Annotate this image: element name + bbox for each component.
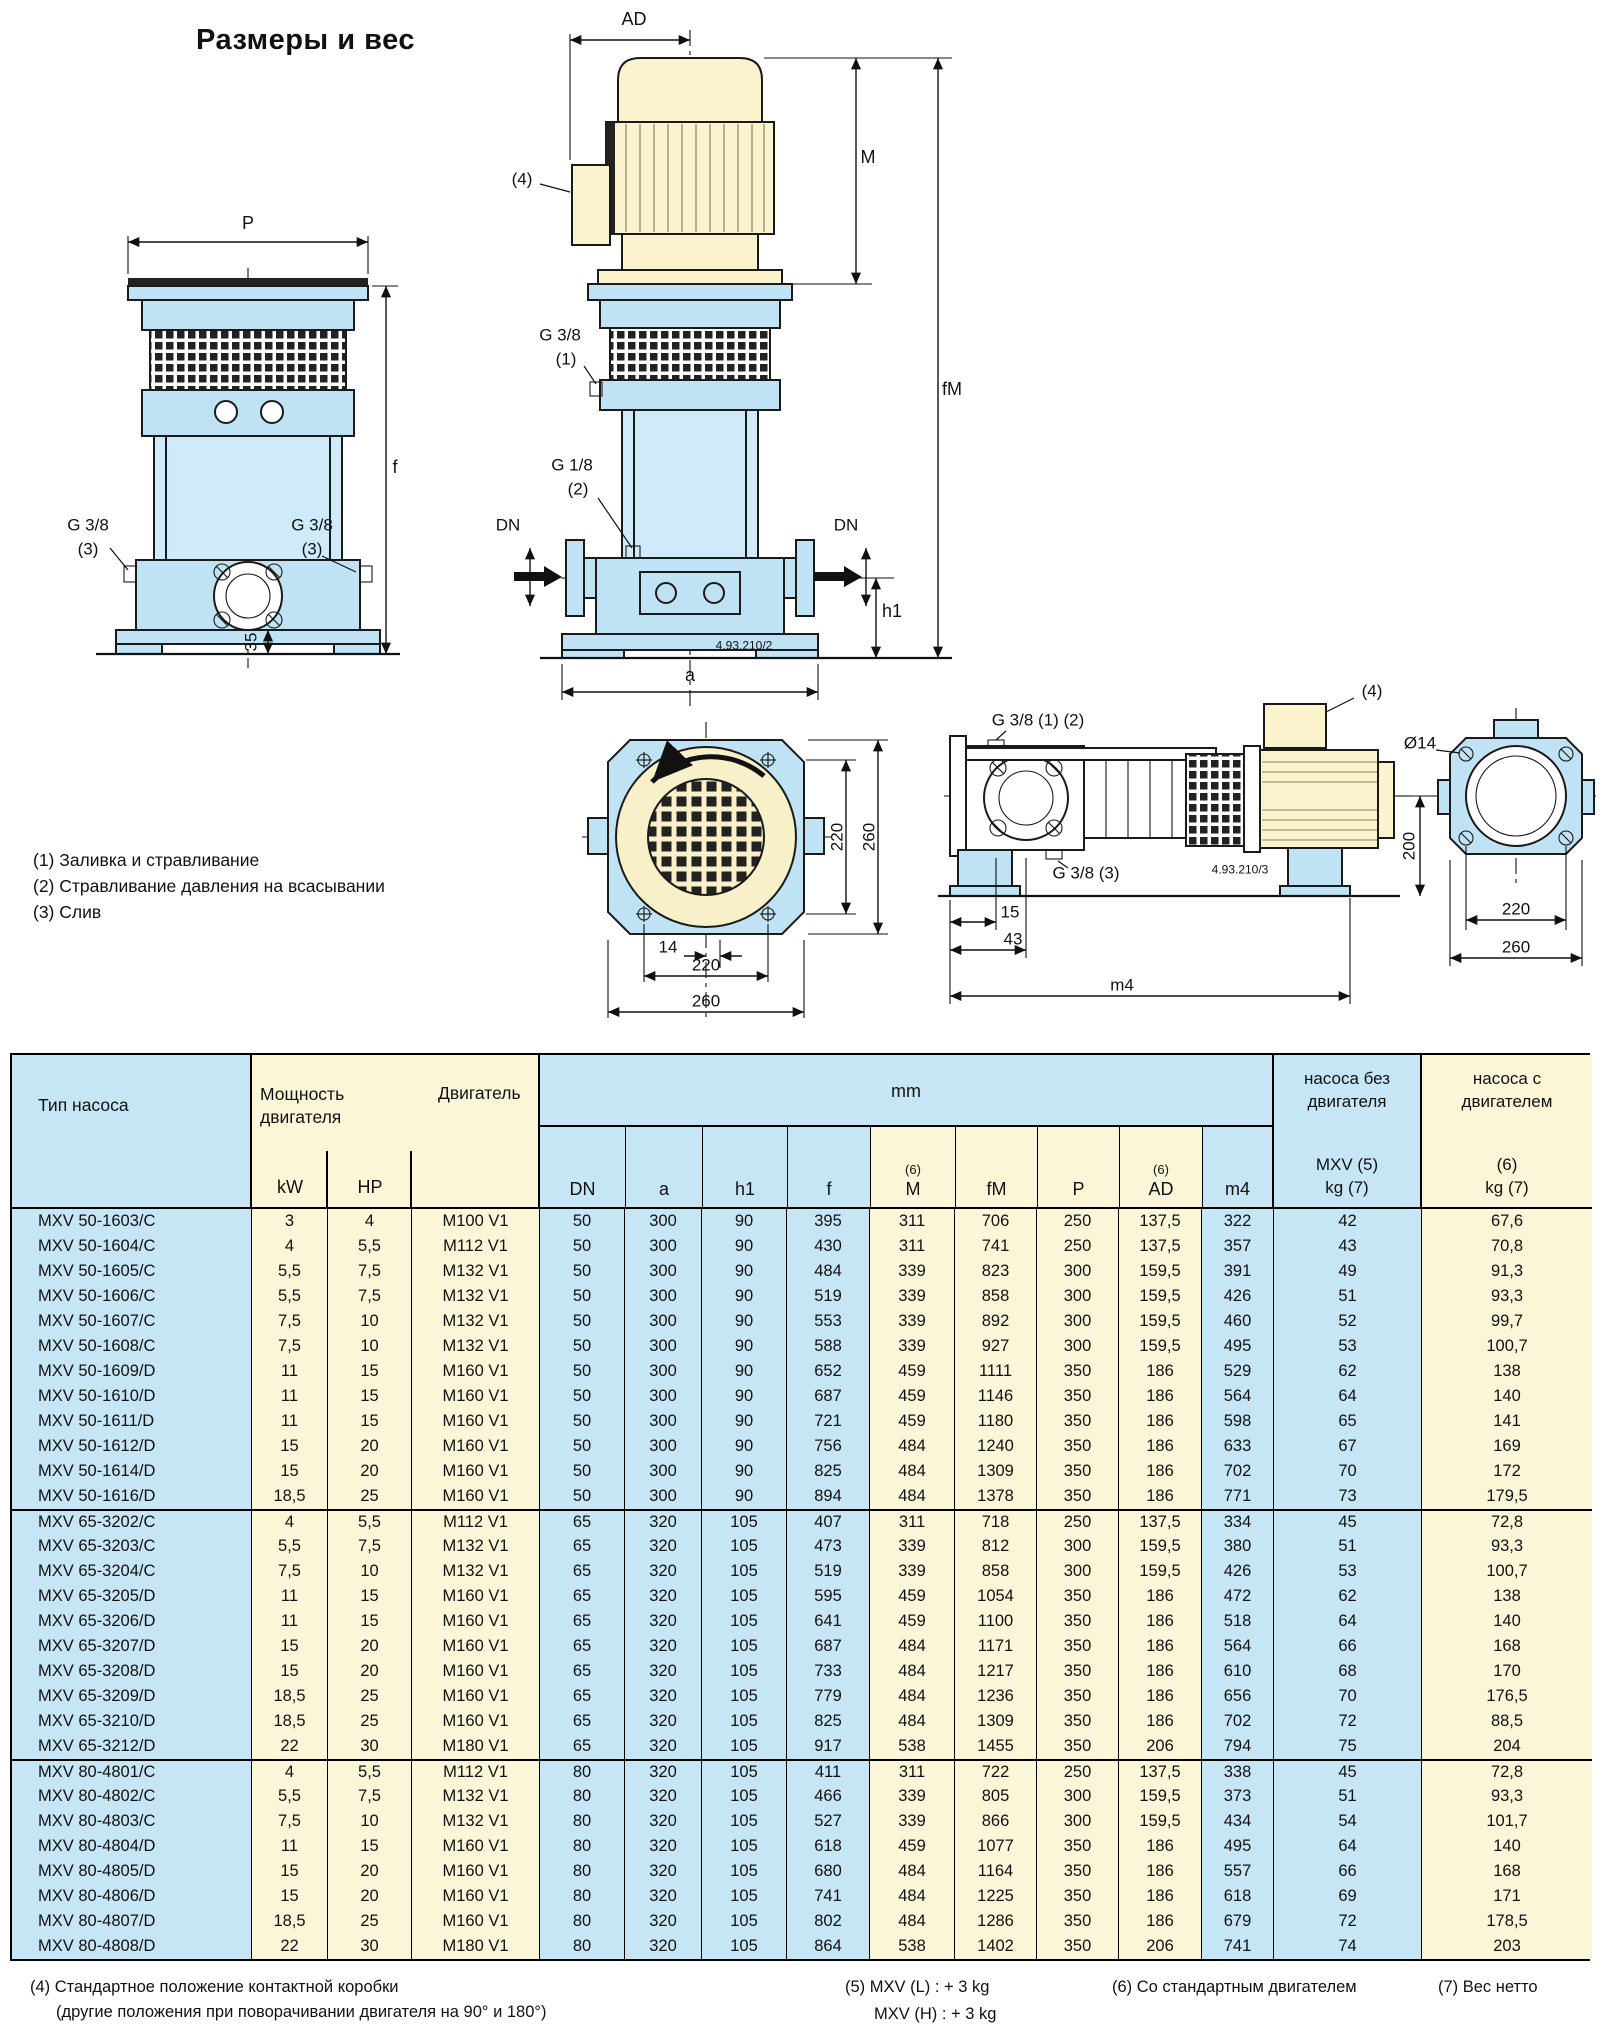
value-cell: 339	[870, 1259, 955, 1284]
value-cell: 72,8	[1422, 1759, 1592, 1784]
value-cell: 15	[252, 1659, 328, 1684]
value-cell: M112 V1	[412, 1759, 540, 1784]
value-cell: 459	[870, 1384, 955, 1409]
value-cell: 320	[625, 1584, 702, 1609]
value-cell: 159,5	[1119, 1309, 1202, 1334]
value-cell: 300	[1037, 1284, 1119, 1309]
value-cell: 350	[1037, 1659, 1119, 1684]
value-cell: 90	[702, 1484, 787, 1509]
value-cell: 484	[870, 1709, 955, 1734]
value-cell: 49	[1274, 1259, 1422, 1284]
value-cell: 25	[328, 1684, 412, 1709]
pump-type-cell: MXV 50-1605/C	[12, 1259, 252, 1284]
value-cell: 15	[328, 1609, 412, 1634]
pump-type-cell: MXV 50-1614/D	[12, 1459, 252, 1484]
value-cell: 105	[702, 1559, 787, 1584]
value-cell: 159,5	[1119, 1559, 1202, 1584]
value-cell: 823	[955, 1259, 1037, 1284]
value-cell: 72,8	[1422, 1509, 1592, 1534]
value-cell: 1402	[955, 1934, 1037, 1959]
value-cell: 618	[787, 1834, 870, 1859]
value-cell: M180 V1	[412, 1734, 540, 1759]
value-cell: 350	[1037, 1584, 1119, 1609]
dim-label-15: 15	[1001, 904, 1020, 923]
value-cell: 65	[540, 1734, 625, 1759]
value-cell: 300	[625, 1284, 702, 1309]
header-weight-with-motor: насоса с двигателем (6) kg (7)	[1422, 1055, 1592, 1209]
value-cell: 105	[702, 1884, 787, 1909]
value-cell: 250	[1037, 1234, 1119, 1259]
value-cell: 80	[540, 1934, 625, 1959]
value-cell: 50	[540, 1459, 625, 1484]
value-cell: 186	[1119, 1434, 1202, 1459]
page-title: Размеры и вес	[196, 24, 415, 57]
value-cell: 186	[1119, 1684, 1202, 1709]
value-cell: 687	[787, 1384, 870, 1409]
value-cell: 4	[328, 1209, 412, 1234]
value-cell: 20	[328, 1859, 412, 1884]
value-cell: 186	[1119, 1634, 1202, 1659]
value-cell: 179,5	[1422, 1484, 1592, 1509]
value-cell: 20	[328, 1634, 412, 1659]
value-cell: 15	[328, 1834, 412, 1859]
value-cell: 45	[1274, 1509, 1422, 1534]
port-label-g38-12: G 3/8 (1) (2)	[992, 712, 1085, 731]
column-header-DN: DN	[540, 1127, 625, 1207]
value-cell: 733	[787, 1659, 870, 1684]
value-cell: M132 V1	[412, 1559, 540, 1584]
port-label-g38-left: G 3/8	[67, 517, 109, 536]
value-cell: 518	[1202, 1609, 1274, 1634]
value-cell: 1180	[955, 1409, 1037, 1434]
value-cell: 18,5	[252, 1909, 328, 1934]
value-cell: 320	[625, 1884, 702, 1909]
value-cell: M132 V1	[412, 1334, 540, 1359]
value-cell: 90	[702, 1459, 787, 1484]
value-cell: 105	[702, 1509, 787, 1534]
value-cell: 825	[787, 1459, 870, 1484]
value-cell: 105	[702, 1759, 787, 1784]
pump-type-cell: MXV 65-3210/D	[12, 1709, 252, 1734]
value-cell: 80	[540, 1759, 625, 1784]
value-cell: 350	[1037, 1634, 1119, 1659]
dim-label-35: 35	[243, 633, 262, 652]
value-cell: M160 V1	[412, 1834, 540, 1859]
value-cell: 858	[955, 1284, 1037, 1309]
value-cell: 564	[1202, 1384, 1274, 1409]
value-cell: 137,5	[1119, 1209, 1202, 1234]
port-ref-3-left: (3)	[78, 541, 99, 560]
value-cell: 65	[540, 1634, 625, 1659]
note-2: (2) Стравливание давления на всасывании	[33, 876, 385, 897]
value-cell: 5,5	[328, 1509, 412, 1534]
value-cell: 7,5	[328, 1284, 412, 1309]
value-cell: 51	[1274, 1784, 1422, 1809]
value-cell: 519	[787, 1559, 870, 1584]
value-cell: 5,5	[252, 1284, 328, 1309]
value-cell: 7,5	[252, 1309, 328, 1334]
value-cell: M100 V1	[412, 1209, 540, 1234]
drawing-code-side: 4.93.210/3	[1212, 863, 1269, 876]
value-cell: 339	[870, 1334, 955, 1359]
pump-type-cell: MXV 50-1606/C	[12, 1284, 252, 1309]
pump-type-cell: MXV 80-4806/D	[12, 1884, 252, 1909]
value-cell: 70	[1274, 1459, 1422, 1484]
value-cell: 339	[870, 1559, 955, 1584]
value-cell: 300	[625, 1209, 702, 1234]
value-cell: 320	[625, 1634, 702, 1659]
value-cell: 7,5	[252, 1559, 328, 1584]
value-cell: 652	[787, 1359, 870, 1384]
value-cell: 90	[702, 1309, 787, 1334]
value-cell: 484	[870, 1859, 955, 1884]
value-cell: 105	[702, 1659, 787, 1684]
value-cell: 15	[328, 1384, 412, 1409]
value-cell: 794	[1202, 1734, 1274, 1759]
value-cell: 105	[702, 1909, 787, 1934]
value-cell: 300	[1037, 1534, 1119, 1559]
value-cell: 30	[328, 1934, 412, 1959]
note-1: (1) Заливка и стравливание	[33, 850, 259, 871]
value-cell: 64	[1274, 1384, 1422, 1409]
pump-type-cell: MXV 50-1607/C	[12, 1309, 252, 1334]
pump-type-cell: MXV 80-4807/D	[12, 1909, 252, 1934]
footnote-4-line1: (4) Стандартное положение контактной кор…	[30, 1978, 399, 1997]
value-cell: 459	[870, 1409, 955, 1434]
value-cell: 206	[1119, 1734, 1202, 1759]
horizontal-pump-drawing	[938, 698, 1430, 1004]
value-cell: 138	[1422, 1584, 1592, 1609]
value-cell: 1054	[955, 1584, 1037, 1609]
value-cell: 300	[625, 1259, 702, 1284]
value-cell: 10	[328, 1334, 412, 1359]
value-cell: 484	[870, 1634, 955, 1659]
value-cell: 300	[625, 1409, 702, 1434]
value-cell: 65	[540, 1559, 625, 1584]
value-cell: 62	[1274, 1359, 1422, 1384]
pump-type-cell: MXV 65-3207/D	[12, 1634, 252, 1659]
value-cell: 538	[870, 1734, 955, 1759]
value-cell: 15	[252, 1859, 328, 1884]
value-cell: 25	[328, 1484, 412, 1509]
value-cell: 484	[870, 1659, 955, 1684]
value-cell: 300	[1037, 1309, 1119, 1334]
value-cell: 320	[625, 1809, 702, 1834]
value-cell: 484	[870, 1484, 955, 1509]
value-cell: 186	[1119, 1584, 1202, 1609]
value-cell: 7,5	[252, 1809, 328, 1834]
value-cell: 186	[1119, 1484, 1202, 1509]
value-cell: 186	[1119, 1409, 1202, 1434]
value-cell: 65	[540, 1659, 625, 1684]
value-cell: 75	[1274, 1734, 1422, 1759]
value-cell: 1236	[955, 1684, 1037, 1709]
column-header-M: (6)M	[870, 1127, 955, 1207]
value-cell: 80	[540, 1809, 625, 1834]
value-cell: 656	[1202, 1684, 1274, 1709]
value-cell: 320	[625, 1684, 702, 1709]
header-power: Мощность двигателя	[260, 1083, 344, 1129]
pump-type-cell: MXV 65-3205/D	[12, 1584, 252, 1609]
value-cell: 168	[1422, 1859, 1592, 1884]
value-cell: 100,7	[1422, 1559, 1592, 1584]
value-cell: 373	[1202, 1784, 1274, 1809]
value-cell: 50	[540, 1409, 625, 1434]
value-cell: 50	[540, 1309, 625, 1334]
value-cell: 1171	[955, 1634, 1037, 1659]
value-cell: 43	[1274, 1234, 1422, 1259]
column-header-m4: m4	[1202, 1127, 1272, 1207]
header-pump-type: Тип насоса	[12, 1055, 252, 1209]
value-cell: 320	[625, 1759, 702, 1784]
dim-label-a: a	[685, 666, 695, 686]
column-header-P: P	[1037, 1127, 1119, 1207]
value-cell: 460	[1202, 1309, 1274, 1334]
value-cell: 595	[787, 1584, 870, 1609]
value-cell: 72	[1274, 1709, 1422, 1734]
value-cell: 11	[252, 1584, 328, 1609]
value-cell: 250	[1037, 1759, 1119, 1784]
value-cell: 15	[328, 1584, 412, 1609]
value-cell: 350	[1037, 1934, 1119, 1959]
value-cell: 141	[1422, 1409, 1592, 1434]
value-cell: 395	[787, 1209, 870, 1234]
value-cell: 339	[870, 1784, 955, 1809]
value-cell: 5,5	[252, 1534, 328, 1559]
dim-label-m4: m4	[1110, 977, 1134, 996]
value-cell: 311	[870, 1209, 955, 1234]
value-cell: 65	[540, 1534, 625, 1559]
value-cell: 1240	[955, 1434, 1037, 1459]
value-cell: 74	[1274, 1934, 1422, 1959]
value-cell: 186	[1119, 1709, 1202, 1734]
value-cell: 300	[625, 1309, 702, 1334]
value-cell: 69	[1274, 1884, 1422, 1909]
port-ref-3-right: (3)	[302, 541, 323, 560]
value-cell: 350	[1037, 1734, 1119, 1759]
value-cell: 50	[540, 1284, 625, 1309]
value-cell: 779	[787, 1684, 870, 1709]
value-cell: 459	[870, 1834, 955, 1859]
value-cell: 4	[252, 1509, 328, 1534]
value-cell: 7,5	[252, 1334, 328, 1359]
value-cell: 186	[1119, 1834, 1202, 1859]
value-cell: 426	[1202, 1559, 1274, 1584]
value-cell: 90	[702, 1259, 787, 1284]
value-cell: 495	[1202, 1334, 1274, 1359]
pump-type-cell: MXV 50-1609/D	[12, 1359, 252, 1384]
value-cell: 459	[870, 1609, 955, 1634]
value-cell: M132 V1	[412, 1309, 540, 1334]
value-cell: M132 V1	[412, 1284, 540, 1309]
value-cell: 741	[1202, 1934, 1274, 1959]
value-cell: 206	[1119, 1934, 1202, 1959]
value-cell: 350	[1037, 1359, 1119, 1384]
value-cell: M160 V1	[412, 1884, 540, 1909]
value-cell: 320	[625, 1609, 702, 1634]
value-cell: 159,5	[1119, 1259, 1202, 1284]
value-cell: 350	[1037, 1409, 1119, 1434]
header-mm-group: mm DNah1f(6)MfMP(6)ADm4	[540, 1055, 1274, 1209]
value-cell: M160 V1	[412, 1384, 540, 1409]
dim-label-220-side: 220	[829, 823, 848, 851]
value-cell: 858	[955, 1559, 1037, 1584]
value-cell: 250	[1037, 1509, 1119, 1534]
value-cell: 1077	[955, 1834, 1037, 1859]
value-cell: 159,5	[1119, 1334, 1202, 1359]
value-cell: 203	[1422, 1934, 1592, 1959]
column-header-a: a	[625, 1127, 702, 1207]
value-cell: 186	[1119, 1659, 1202, 1684]
value-cell: 137,5	[1119, 1759, 1202, 1784]
column-header-fM: fM	[955, 1127, 1037, 1207]
value-cell: 1164	[955, 1859, 1037, 1884]
value-cell: 687	[787, 1634, 870, 1659]
pump-type-cell: MXV 50-1612/D	[12, 1434, 252, 1459]
pump-type-cell: MXV 65-3203/C	[12, 1534, 252, 1559]
value-cell: 105	[702, 1534, 787, 1559]
value-cell: 93,3	[1422, 1784, 1592, 1809]
value-cell: 300	[625, 1434, 702, 1459]
value-cell: M160 V1	[412, 1409, 540, 1434]
value-cell: 11	[252, 1384, 328, 1409]
value-cell: 65	[1274, 1409, 1422, 1434]
value-cell: M132 V1	[412, 1534, 540, 1559]
value-cell: 434	[1202, 1809, 1274, 1834]
value-cell: 391	[1202, 1259, 1274, 1284]
value-cell: 65	[540, 1584, 625, 1609]
value-cell: 426	[1202, 1284, 1274, 1309]
pump-type-cell: MXV 65-3204/C	[12, 1559, 252, 1584]
value-cell: 250	[1037, 1209, 1119, 1234]
value-cell: 64	[1274, 1834, 1422, 1859]
dim-label-dn-left: DN	[496, 517, 521, 536]
value-cell: 10	[328, 1559, 412, 1584]
value-cell: 50	[540, 1209, 625, 1234]
value-cell: 320	[625, 1909, 702, 1934]
value-cell: 90	[702, 1209, 787, 1234]
value-cell: 7,5	[328, 1784, 412, 1809]
value-cell: 140	[1422, 1384, 1592, 1409]
value-cell: M112 V1	[412, 1234, 540, 1259]
value-cell: 538	[870, 1934, 955, 1959]
value-cell: 88,5	[1422, 1709, 1592, 1734]
value-cell: 65	[540, 1509, 625, 1534]
value-cell: 65	[540, 1609, 625, 1634]
value-cell: 529	[1202, 1359, 1274, 1384]
value-cell: 430	[787, 1234, 870, 1259]
value-cell: 350	[1037, 1709, 1119, 1734]
value-cell: 466	[787, 1784, 870, 1809]
value-cell: 350	[1037, 1434, 1119, 1459]
value-cell: 186	[1119, 1359, 1202, 1384]
drawing-code-front: 4.93.210/2	[716, 639, 773, 652]
value-cell: 322	[1202, 1209, 1274, 1234]
header-kw: kW	[252, 1177, 328, 1198]
value-cell: 90	[702, 1384, 787, 1409]
dim-label-260-bottom: 260	[692, 993, 720, 1012]
footnote-7: (7) Вес нетто	[1438, 1978, 1538, 1997]
pump-type-cell: MXV 50-1604/C	[12, 1234, 252, 1259]
value-cell: 65	[540, 1684, 625, 1709]
value-cell: 300	[1037, 1334, 1119, 1359]
value-cell: 105	[702, 1684, 787, 1709]
value-cell: 105	[702, 1934, 787, 1959]
value-cell: 90	[702, 1334, 787, 1359]
value-cell: 22	[252, 1734, 328, 1759]
value-cell: 137,5	[1119, 1509, 1202, 1534]
value-cell: 484	[870, 1884, 955, 1909]
value-cell: 73	[1274, 1484, 1422, 1509]
value-cell: 15	[328, 1409, 412, 1434]
value-cell: 50	[540, 1234, 625, 1259]
value-cell: 1286	[955, 1909, 1037, 1934]
value-cell: 411	[787, 1759, 870, 1784]
value-cell: 894	[787, 1484, 870, 1509]
value-cell: 495	[1202, 1834, 1274, 1859]
column-header-f: f	[787, 1127, 870, 1207]
value-cell: 680	[787, 1859, 870, 1884]
dim-label-220-flange: 220	[1502, 901, 1530, 920]
value-cell: 90	[702, 1434, 787, 1459]
value-cell: 70	[1274, 1684, 1422, 1709]
value-cell: 320	[625, 1709, 702, 1734]
pump-type-cell: MXV 65-3202/C	[12, 1509, 252, 1534]
dim-label-h1: h1	[882, 602, 902, 622]
value-cell: 1309	[955, 1459, 1037, 1484]
value-cell: 45	[1274, 1759, 1422, 1784]
value-cell: 186	[1119, 1459, 1202, 1484]
value-cell: 186	[1119, 1909, 1202, 1934]
value-cell: 159,5	[1119, 1284, 1202, 1309]
value-cell: 484	[870, 1909, 955, 1934]
value-cell: 105	[702, 1734, 787, 1759]
value-cell: 741	[787, 1884, 870, 1909]
value-cell: 459	[870, 1584, 955, 1609]
value-cell: 11	[252, 1834, 328, 1859]
dim-label-14: 14	[659, 939, 678, 958]
value-cell: 170	[1422, 1659, 1592, 1684]
value-cell: 50	[540, 1259, 625, 1284]
value-cell: 311	[870, 1509, 955, 1534]
value-cell: 320	[625, 1534, 702, 1559]
value-cell: 80	[540, 1859, 625, 1884]
port-ref-2: (2)	[568, 481, 589, 500]
value-cell: 140	[1422, 1609, 1592, 1634]
value-cell: 204	[1422, 1734, 1592, 1759]
value-cell: 50	[540, 1384, 625, 1409]
footnote-4-line2: (другие положения при поворачивании двиг…	[56, 2003, 547, 2022]
value-cell: 171	[1422, 1884, 1592, 1909]
dim-label-260-side: 260	[861, 823, 880, 851]
value-cell: 54	[1274, 1809, 1422, 1834]
value-cell: 15	[252, 1634, 328, 1659]
value-cell: 138	[1422, 1359, 1592, 1384]
pump-type-cell: MXV 65-3206/D	[12, 1609, 252, 1634]
value-cell: 702	[1202, 1709, 1274, 1734]
value-cell: 300	[625, 1334, 702, 1359]
value-cell: 90	[702, 1234, 787, 1259]
value-cell: 864	[787, 1934, 870, 1959]
value-cell: 484	[870, 1434, 955, 1459]
value-cell: 105	[702, 1859, 787, 1884]
value-cell: 80	[540, 1884, 625, 1909]
port-label-g38-right: G 3/8	[291, 517, 333, 536]
value-cell: 1455	[955, 1734, 1037, 1759]
dim-label-fm: fM	[942, 380, 962, 400]
value-cell: 320	[625, 1784, 702, 1809]
value-cell: 484	[787, 1259, 870, 1284]
